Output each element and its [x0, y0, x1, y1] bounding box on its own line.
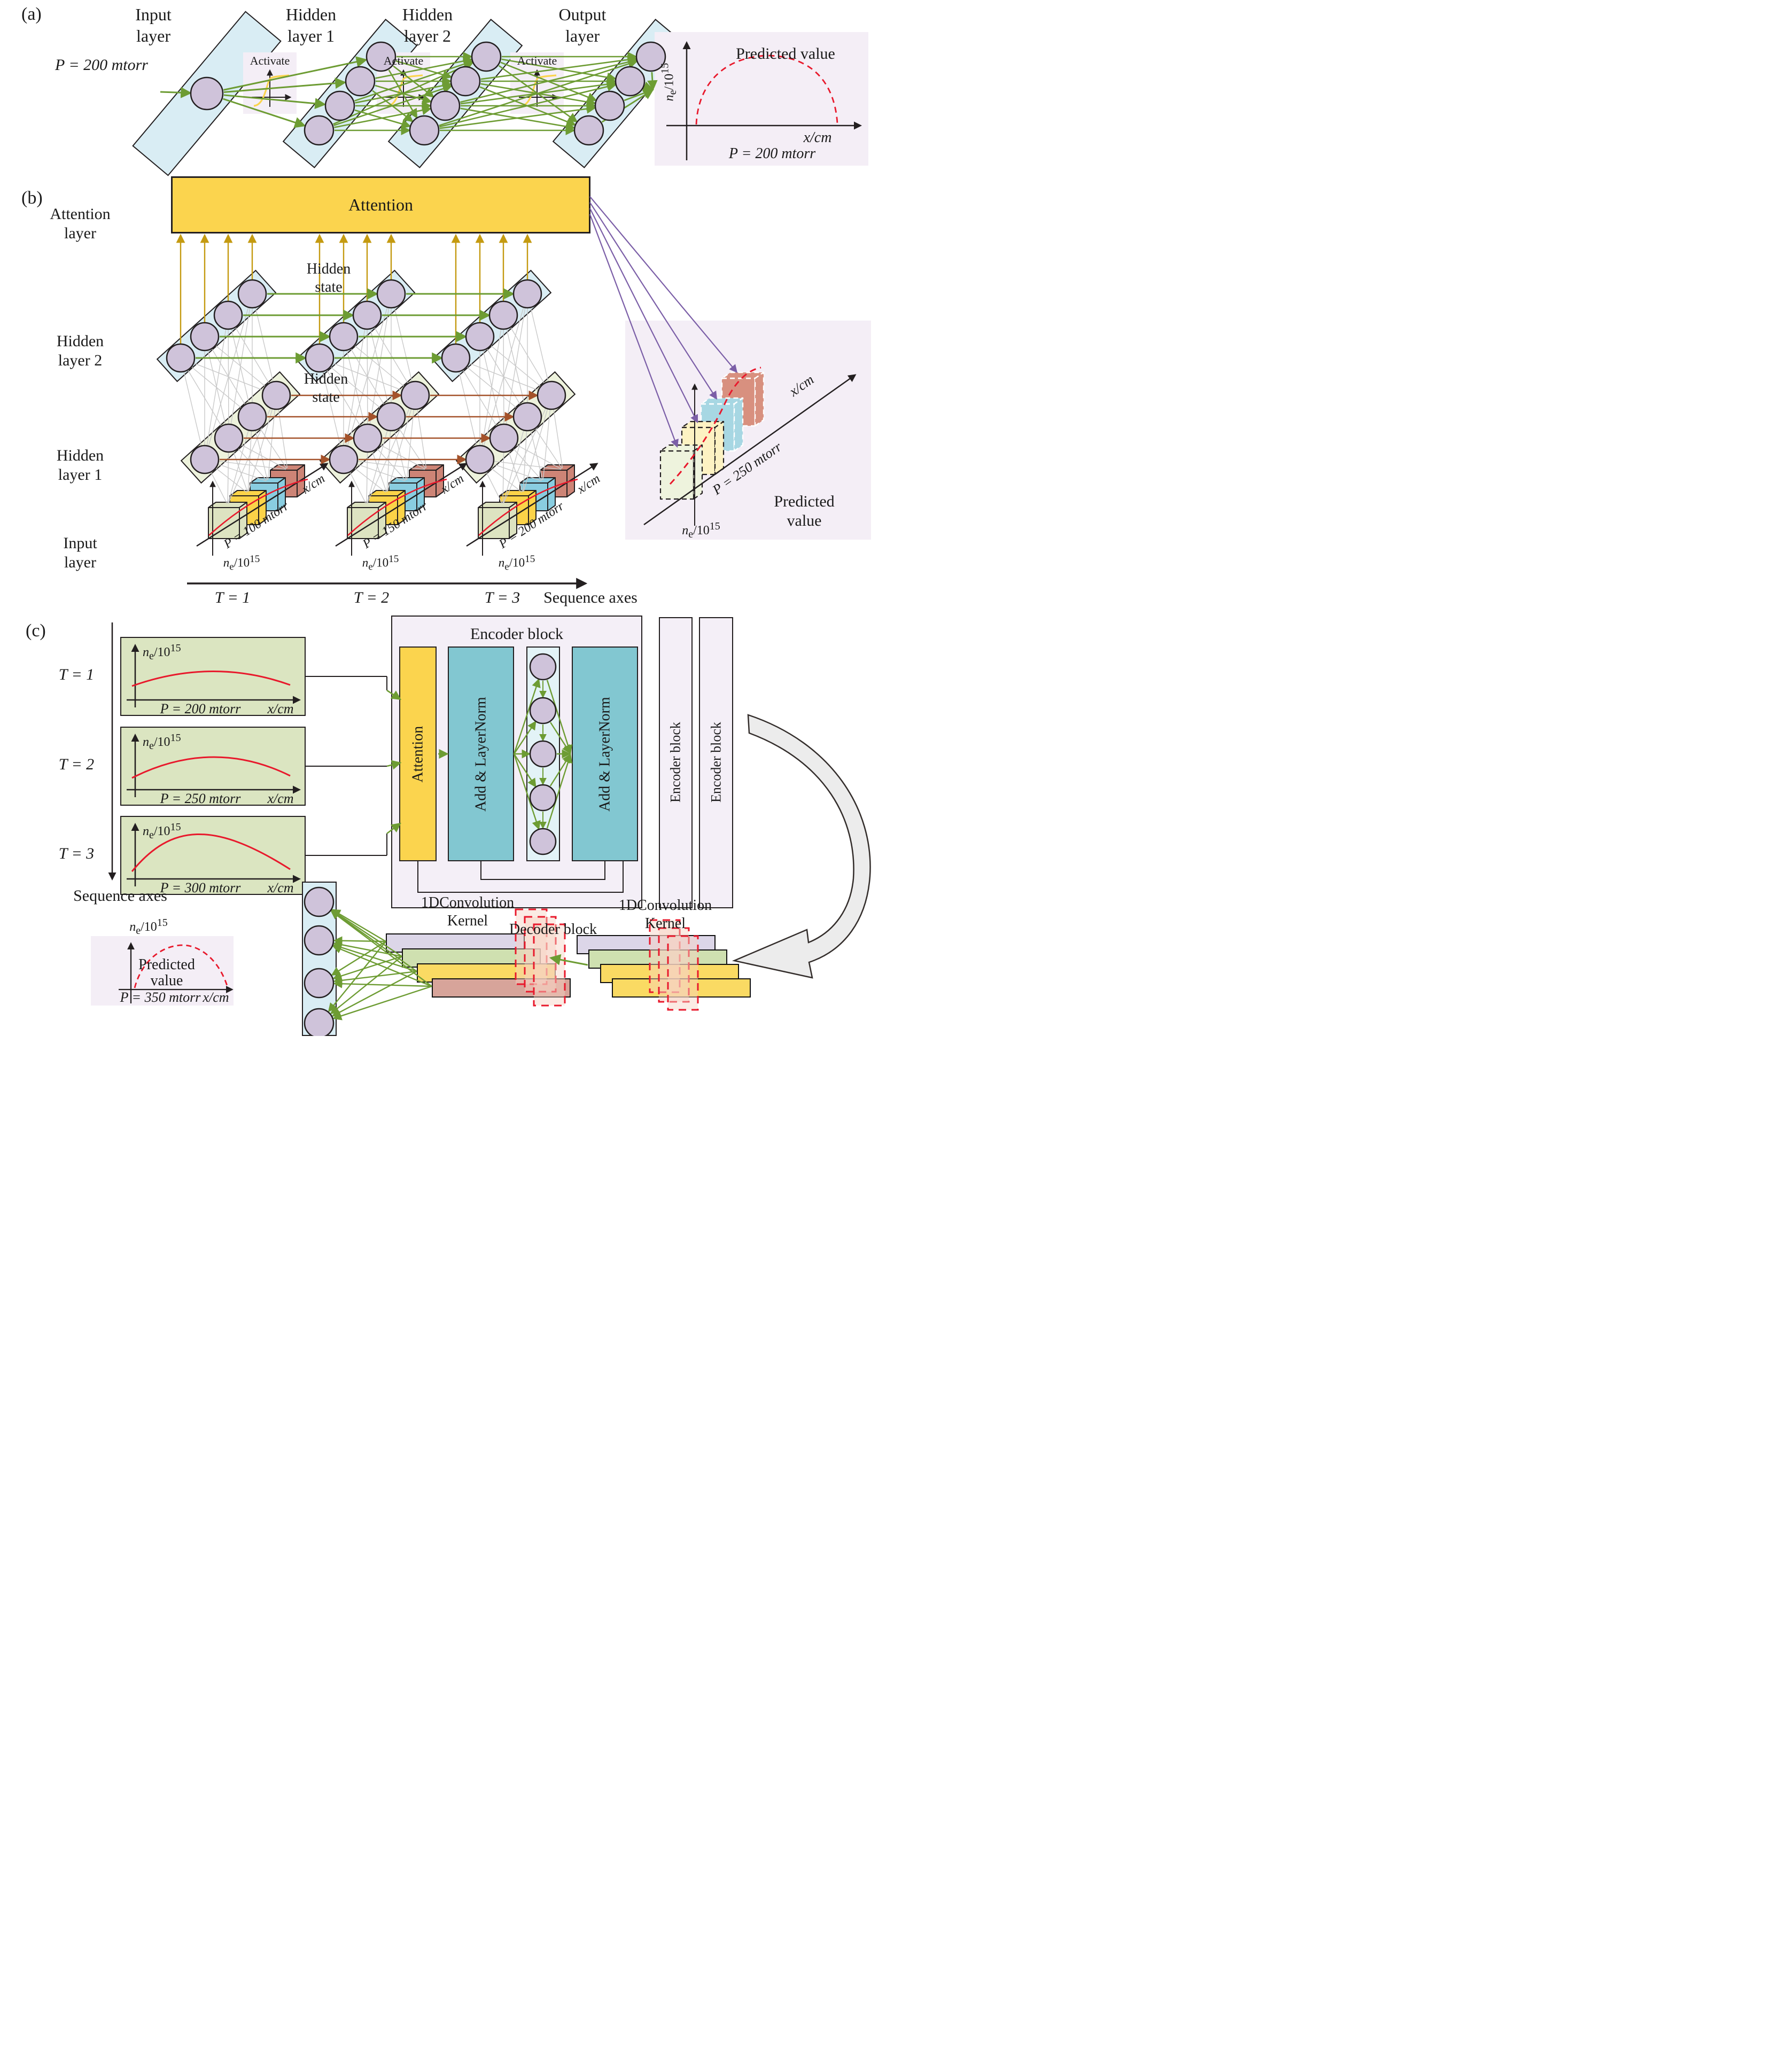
b-stack-xlabel-t2: x/cm [426, 464, 479, 505]
c-conv2-label-2: Kernel [601, 915, 729, 932]
b-hidden-state-2-label-2: state [289, 389, 363, 406]
b-stack-ne-t1: ne/1015 [193, 554, 290, 573]
b-stack-pressure-t1: P = 100 mtorr [208, 490, 305, 560]
c-t1-xlabel: x/cm [256, 701, 305, 716]
c-t2-xlabel: x/cm [256, 791, 305, 806]
c-t2-label: T = 2 [42, 755, 111, 774]
b-h1-slab-t1 [181, 371, 301, 484]
a-hidden2-label-2: layer 2 [379, 27, 476, 46]
a-predicted-pressure: P = 200 mtorr [708, 145, 836, 162]
c-encoder-block2-label: Encoder block [667, 709, 683, 816]
c-t1-label: T = 1 [42, 666, 111, 684]
b-t2-label: T = 2 [323, 589, 419, 607]
c-predicted-xlabel: x/cm [195, 990, 237, 1005]
c-t2-pressure: P = 250 mtorr [142, 791, 259, 806]
b-hidden1-label-1: Hidden [21, 447, 139, 465]
a-input-label-1: Input [105, 5, 201, 25]
c-t3-xlabel: x/cm [256, 880, 305, 895]
c-decoder-output-column [302, 882, 337, 1036]
c-tbox-connectors [306, 676, 387, 855]
b-hidden-state-1-label-2: state [291, 279, 366, 295]
c-conv2-bar-yellow2 [612, 978, 751, 998]
c-conv1-label-1: 1DConvolution [403, 894, 532, 911]
b-hidden2-label-2: layer 2 [21, 352, 139, 370]
b-stack-pressure-t2: P = 150 mtorr [347, 490, 444, 560]
b-h2-slab-t3 [432, 270, 552, 382]
c-predicted-title-1: Predicted [113, 956, 220, 973]
a-hidden1-label-1: Hidden [263, 5, 359, 25]
b-input-label-1: Input [21, 534, 139, 552]
b-sequence-axes-label: Sequence axes [529, 589, 652, 607]
c-decoder-bar-red [432, 978, 571, 998]
b-input-label-2: layer [21, 554, 139, 572]
b-predicted-title-1: Predicted [751, 493, 858, 511]
c-t3-label: T = 3 [42, 845, 111, 863]
b-stack-xlabel-t3: x/cm [563, 464, 616, 505]
a-hidden1-label-2: layer 1 [263, 27, 359, 46]
c-t3-ne: ne/1015 [143, 821, 228, 841]
a-activate-label-3: Activate [510, 54, 564, 68]
b-hidden-state-1-label-1: Hidden [291, 261, 366, 277]
b-attention-box-label: Attention [171, 196, 590, 215]
a-activate-label-2: Activate [377, 54, 430, 68]
c-t1-ne: ne/1015 [143, 642, 228, 662]
a-predicted-ylabel: ne/1015 [659, 50, 679, 114]
c-encoder-title: Encoder block [437, 625, 597, 643]
c-sequence-axes-label: Sequence axes [53, 887, 187, 905]
a-predicted-title: Predicted value [716, 45, 855, 63]
figure-canvas: (a) Input layer Hidden layer 1 Hidden la… [0, 0, 894, 1036]
c-conv2-to-decoder-arrow [551, 958, 588, 965]
a-input-label-2: layer [105, 27, 201, 46]
b-t1-label: T = 1 [184, 589, 281, 607]
c-addnorm2-label: Add & LayerNorm [596, 680, 613, 829]
c-conv2-label-1: 1DConvolution [601, 897, 729, 914]
c-addnorm1-label: Add & LayerNorm [472, 680, 489, 829]
b-stack-xlabel-t1: x/cm [287, 464, 340, 505]
b-hidden-state-2-label-1: Hidden [289, 371, 363, 387]
c-encoder-attention-label: Attention [409, 701, 426, 808]
c-predicted-ne: ne/1015 [100, 917, 197, 937]
c-decoder-block-label: Decoder block [494, 921, 612, 938]
b-stack-ne-t2: ne/1015 [332, 554, 429, 573]
a-activate-label-1: Activate [243, 54, 297, 68]
c-predicted-title-2: value [113, 972, 220, 989]
c-loop-arrow [734, 715, 870, 978]
b-h1-slab-t3 [456, 371, 576, 484]
a-pressure-label: P = 200 mtorr [32, 56, 171, 74]
b-predicted-ne: ne/1015 [653, 520, 749, 540]
b-attention-layer-label-2: layer [21, 224, 139, 243]
c-tag: (c) [26, 621, 46, 641]
b-h1-slab-t2 [320, 371, 440, 484]
a-output-label-2: layer [534, 27, 631, 46]
b-stack-ne-t3: ne/1015 [469, 554, 565, 573]
c-encoder-block3-label: Encoder block [708, 709, 724, 816]
b-attention-layer-label-1: Attention [21, 205, 139, 223]
b-hidden1-label-2: layer 1 [21, 466, 139, 484]
b-h2-slab-t1 [157, 270, 277, 382]
b-hidden2-label-1: Hidden [21, 332, 139, 350]
a-hidden2-label-1: Hidden [379, 5, 476, 25]
b-predicted-title-2: value [751, 512, 858, 530]
a-tag: (a) [21, 4, 42, 25]
a-predicted-xlabel: x/cm [791, 129, 844, 146]
b-stack-pressure-t3: P = 200 mtorr [483, 490, 580, 560]
c-ff-box [526, 646, 560, 861]
c-t1-pressure: P = 200 mtorr [142, 701, 259, 716]
a-output-label-1: Output [534, 5, 631, 25]
c-t2-ne: ne/1015 [143, 732, 228, 752]
